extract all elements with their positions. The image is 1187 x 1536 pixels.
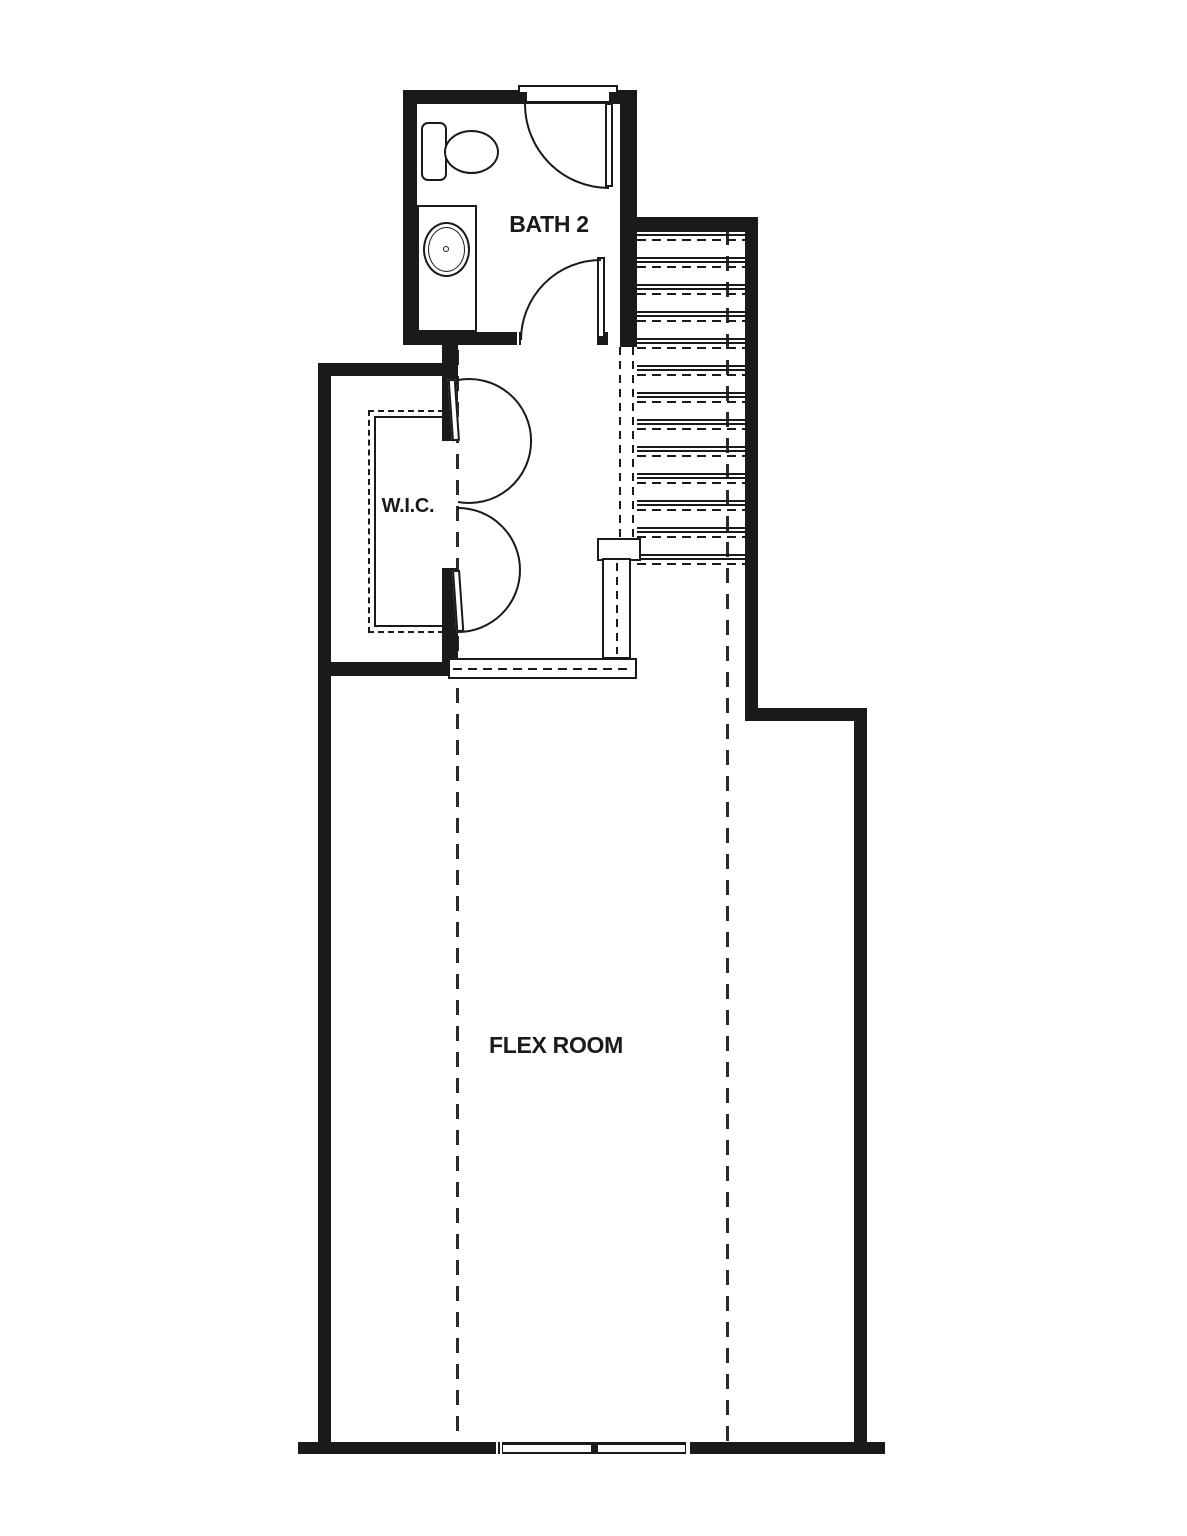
- window-jamb-tick: [690, 1442, 692, 1454]
- window-1: [502, 1444, 592, 1453]
- stair-tread: [637, 338, 745, 344]
- wall-flex-right: [854, 708, 867, 1454]
- stair-tread: [637, 419, 745, 425]
- stair-tread: [637, 257, 745, 263]
- room-label-wic: W.I.C.: [368, 495, 448, 518]
- stair-tread-dash: [637, 320, 745, 322]
- door-arc-bath-bottom: [521, 260, 601, 340]
- stair-tread: [637, 392, 745, 398]
- stair-tread-dash: [637, 482, 745, 484]
- stair-tread-dash: [637, 239, 745, 241]
- stair-tread-dash: [637, 293, 745, 295]
- door-opening-bath-bottom: [523, 332, 597, 345]
- wall-step-right: [745, 708, 867, 721]
- door-frame-bath-top: [518, 85, 618, 103]
- door-leaf-bath-top: [605, 103, 613, 187]
- stair-tread-dash: [637, 455, 745, 457]
- stair-guard-dash-left: [619, 347, 621, 541]
- window-2: [597, 1444, 686, 1453]
- stair-tread-dash: [637, 266, 745, 268]
- wall-wic-bottom: [318, 662, 458, 676]
- room-label-bath2: BATH 2: [488, 211, 610, 238]
- stair-tread: [637, 527, 745, 533]
- closet-shelf-edge: [374, 416, 454, 627]
- wall-bath-left: [403, 90, 417, 345]
- door-arc-bath-top: [525, 104, 609, 188]
- ceiling-break-line-left: [456, 350, 459, 1442]
- railing-dash: [616, 563, 618, 654]
- stair-tread: [637, 446, 745, 452]
- wall-stair-right: [745, 217, 758, 721]
- wall-bath-right: [620, 90, 637, 347]
- stair-tread: [637, 311, 745, 317]
- room-label-flex: FLEX ROOM: [486, 1032, 626, 1059]
- stair-tread-dash: [637, 347, 745, 349]
- toilet-bowl: [444, 130, 499, 174]
- stair-tread: [637, 230, 745, 236]
- sink-drain: [443, 246, 449, 252]
- stair-tread-dash: [637, 428, 745, 430]
- stair-tread: [637, 365, 745, 371]
- door-jamb-bath-top-l: [518, 92, 527, 104]
- wall-wic-top: [318, 363, 458, 376]
- stair-tread-dash: [637, 509, 745, 511]
- stair-tread: [637, 554, 745, 560]
- stair-tread: [637, 473, 745, 479]
- stair-tread-dash: [637, 401, 745, 403]
- door-jamb-tick: [519, 332, 521, 345]
- door-leaf-bath-bottom: [597, 257, 605, 338]
- stair-tread-dash: [637, 563, 745, 565]
- window-jamb-tick: [498, 1442, 500, 1454]
- railing-vertical: [602, 558, 631, 659]
- stair-tread: [637, 284, 745, 290]
- stair-tread: [637, 500, 745, 506]
- stair-tread-dash: [637, 374, 745, 376]
- stair-tread-dash: [637, 536, 745, 538]
- wall-stair-top: [637, 217, 758, 230]
- railing-dash: [453, 668, 632, 670]
- stair-treads: [637, 230, 745, 575]
- railing-horizontal: [448, 658, 637, 679]
- door-arc-wic-lower: [458, 508, 520, 632]
- wall-flex-left: [318, 363, 331, 1454]
- stair-guard-dash-right: [632, 347, 634, 541]
- door-arc-wic-upper: [458, 379, 531, 503]
- floor-plan: BATH 2 W.I.C. FLEX ROOM: [0, 0, 1187, 1536]
